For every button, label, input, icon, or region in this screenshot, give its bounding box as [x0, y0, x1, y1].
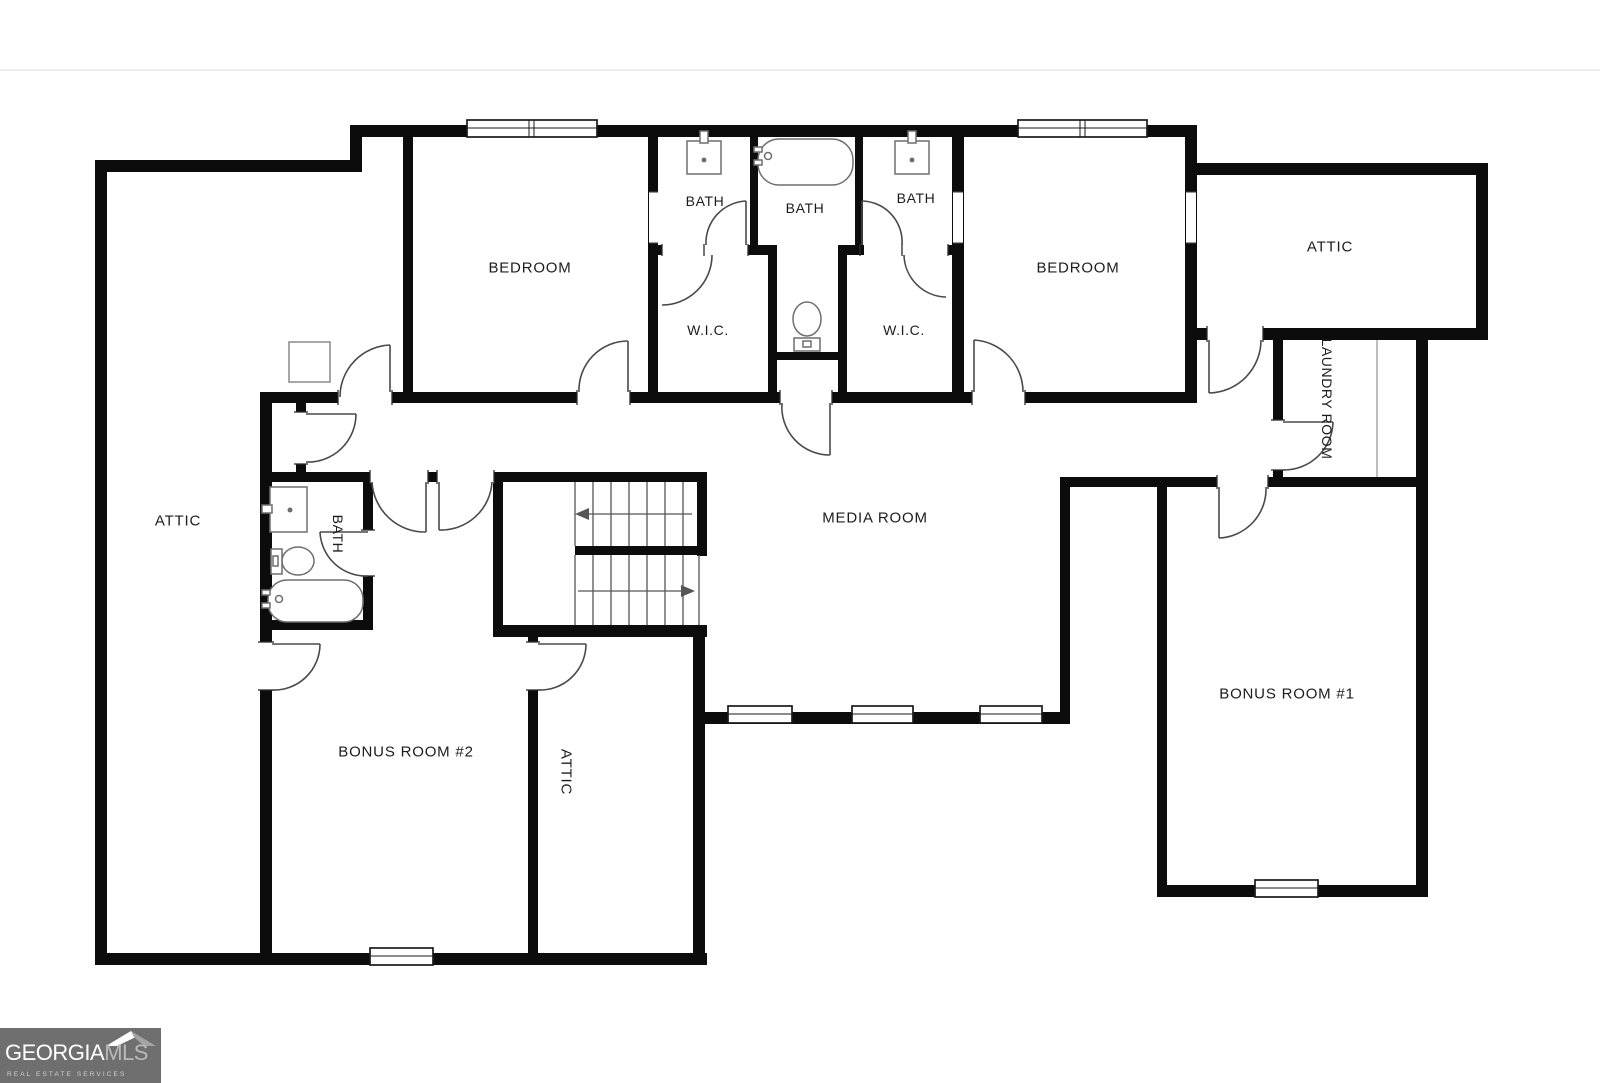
- room-label-bedroom-left: BEDROOM: [488, 260, 571, 277]
- door-hall-chase: [306, 414, 356, 462]
- logo-tagline: REAL ESTATE SERVICES: [7, 1071, 126, 1078]
- doors: [272, 201, 1333, 690]
- bathtub-fixture-bath-bottom: [262, 580, 363, 622]
- door-attic-bottom: [538, 644, 586, 690]
- logo-text-mls: MLS: [104, 1040, 148, 1065]
- window-bedroom-right-top: [1018, 120, 1147, 137]
- door-bath-right: [862, 201, 902, 245]
- bathtub-fixture-bath-middle: [754, 139, 853, 185]
- logo-brand-line: GEORGIAMLS: [5, 1041, 148, 1065]
- window-media-3: [980, 706, 1042, 723]
- door-bedroom-left: [579, 341, 628, 392]
- window-bedroom-left-top: [467, 120, 597, 137]
- stair-arrow-down: [578, 585, 695, 597]
- georgia-mls-logo: GEORGIAMLS REAL ESTATE SERVICES: [0, 1028, 161, 1083]
- toilet-fixture-bath-middle: [793, 302, 821, 351]
- logo-text-georgia: GEORGIA: [5, 1040, 104, 1065]
- door-attic-right: [1209, 340, 1261, 393]
- room-label-laundry: LAUNDRY ROOM: [1319, 338, 1335, 459]
- room-label-wic-left: W.I.C.: [687, 322, 729, 338]
- room-label-attic-right: ATTIC: [1307, 239, 1353, 256]
- window-media-2: [852, 706, 913, 723]
- window-bonus1-bottom: [1255, 880, 1318, 897]
- room-label-media-room: MEDIA ROOM: [822, 510, 928, 527]
- door-wic-left: [662, 255, 712, 305]
- door-bonus2-right: [439, 482, 492, 530]
- room-label-attic-bottom: ATTIC: [558, 749, 575, 795]
- room-label-wic-right: W.I.C.: [883, 322, 925, 338]
- door-bonus1: [1219, 487, 1266, 538]
- room-label-bath-right: BATH: [897, 190, 936, 206]
- floor-plan-drawing: [0, 0, 1600, 1083]
- door-bath-middle: [782, 403, 830, 455]
- room-label-bath-middle: BATH: [786, 200, 825, 216]
- door-bedroom-right: [974, 340, 1023, 392]
- room-label-bonus-room-2: BONUS ROOM #2: [338, 744, 473, 761]
- door-bonus2-left: [372, 482, 426, 532]
- room-label-bedroom-right: BEDROOM: [1036, 260, 1119, 277]
- door-attic-left: [340, 345, 390, 397]
- window-media-1: [728, 706, 792, 723]
- sink-fixture-bath-left: [687, 131, 721, 174]
- walls: [95, 125, 1488, 965]
- room-label-bath-bottom: BATH: [330, 515, 346, 554]
- toilet-fixture-bath-bottom: [271, 547, 314, 575]
- window-bonus2-bottom: [370, 948, 433, 965]
- room-label-attic-left: ATTIC: [155, 513, 201, 530]
- door-wic-right: [904, 255, 946, 297]
- sink-fixture-bath-right: [895, 131, 929, 174]
- room-label-bath-left: BATH: [686, 193, 725, 209]
- room-label-bonus-room-1: BONUS ROOM #1: [1219, 686, 1354, 703]
- door-attic-to-bonus2: [272, 644, 320, 690]
- floor-plan-page: BEDROOM BEDROOM BATH BATH BATH W.I.C. W.…: [0, 0, 1600, 1083]
- attic-access-square: [289, 342, 330, 382]
